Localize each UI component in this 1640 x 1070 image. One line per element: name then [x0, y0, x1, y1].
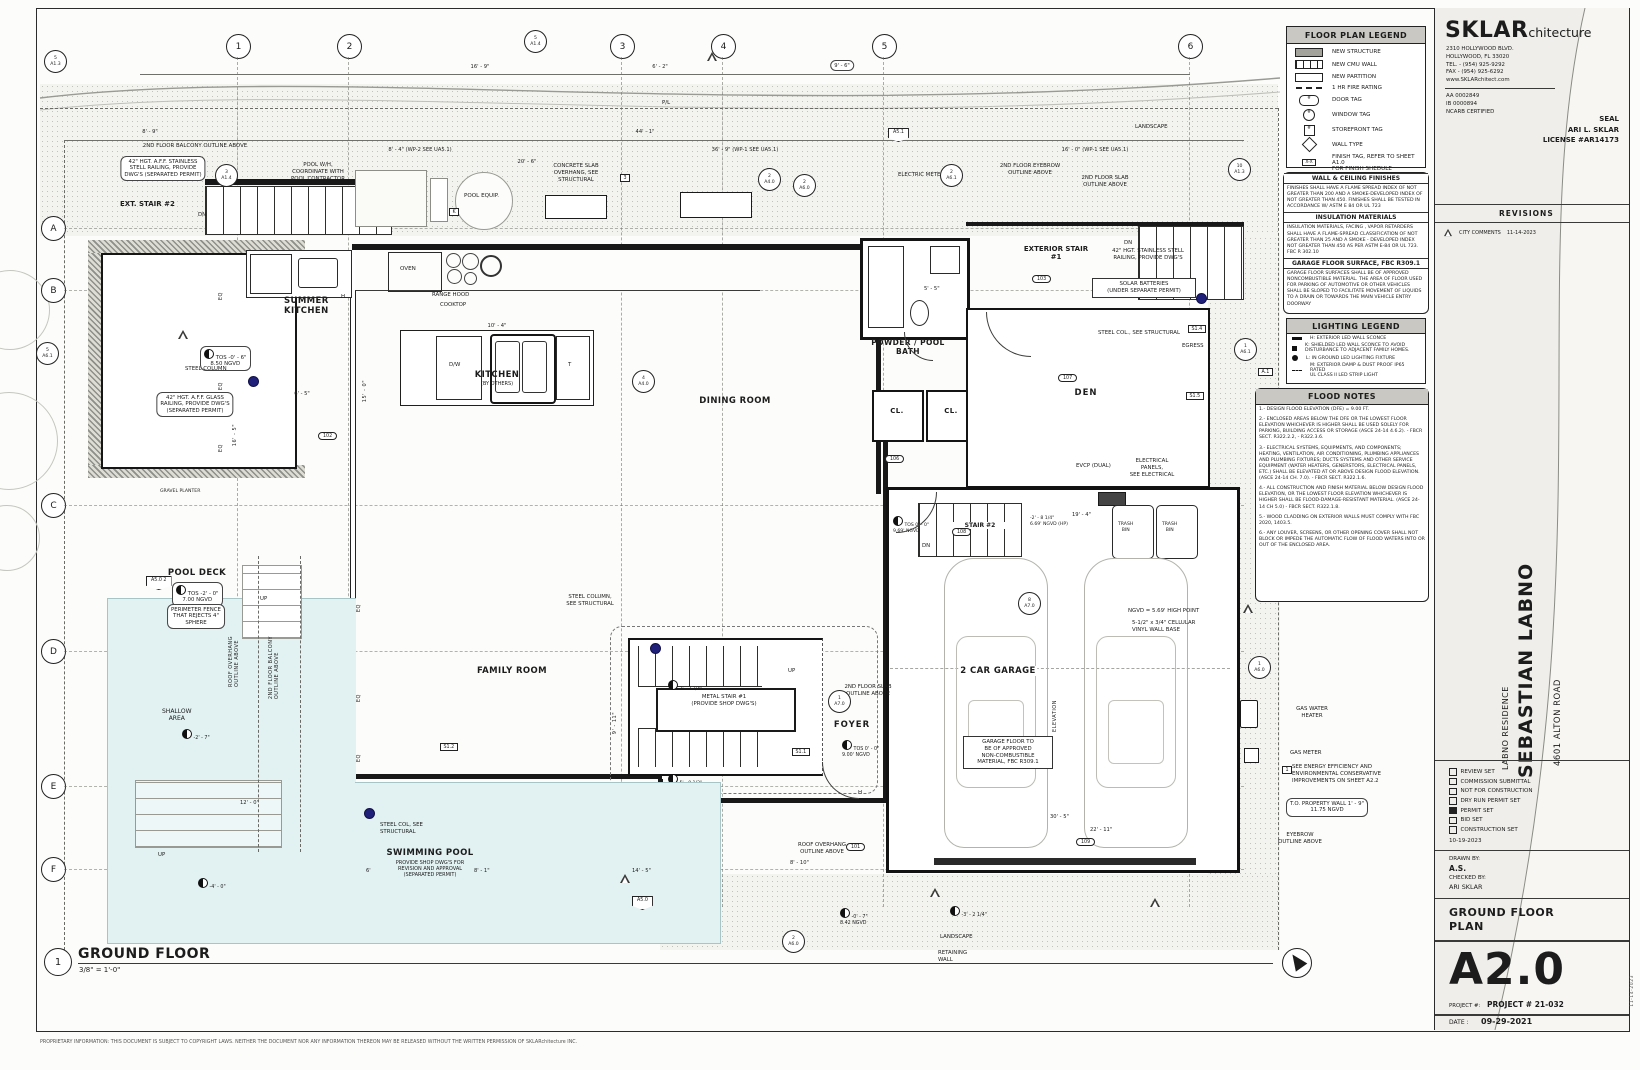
elevation-flag-icon	[842, 740, 852, 750]
dim: 8' - 4" (WP-2 SEE UA5.1)	[388, 147, 451, 153]
steel-column-icon	[650, 643, 661, 654]
dim: 44' - 1"	[636, 129, 655, 135]
view-scale: 3/8" = 1'-0"	[79, 966, 120, 974]
room-label-cl: CL.	[944, 407, 957, 415]
annotation: NGVD = 5.69' HIGH POINT	[1128, 608, 1199, 615]
dim: 15' - 0"	[362, 380, 368, 402]
trash-pullout	[556, 336, 590, 400]
annotation: STEEL COLUMN	[185, 366, 227, 373]
elevation-note: TOS -2' - 0" 7.00 NGVD	[172, 582, 223, 607]
property-line-top	[40, 108, 1278, 109]
annotation-vertical: ROOF OVERHANG OUTLINE ABOVE	[228, 636, 240, 687]
elevation-note: -3' - 2 1/4"	[950, 906, 987, 919]
insulation-body: INSULATION MATERIALS, FACING , VAPOR RET…	[1284, 223, 1428, 258]
room-label-den: DEN	[1075, 388, 1098, 398]
planter-band	[88, 253, 101, 465]
checkbox-icon	[1449, 817, 1457, 825]
steel-column-icon	[248, 376, 259, 387]
sink-icon	[298, 258, 338, 288]
door-tag-symbol: #	[1294, 95, 1324, 106]
sconce-tag: H	[858, 790, 862, 797]
checkbox-icon	[1449, 788, 1457, 796]
gas-water-heater-icon	[1240, 700, 1258, 728]
annotation: COOKTOP	[440, 302, 466, 309]
room-label-garage: 2 CAR GARAGE	[958, 666, 1037, 676]
cmu-wall-symbol	[1294, 60, 1324, 69]
dim: 30' - 5"	[1050, 814, 1069, 820]
roof-overhang-dashed	[258, 556, 259, 852]
trash-bin-label: TRASH BIN	[1162, 522, 1177, 533]
residence-label: LABNO RESIDENCE	[1501, 600, 1510, 770]
elevation-note: -4' - 0"	[198, 878, 226, 891]
annotation: T.O. PROPERTY WALL 1' - 9" 11.75 NGVD	[1286, 798, 1368, 817]
burner-icon	[447, 269, 462, 284]
drawing-sheet: P/L 1 2 3 4 5 6 A B C D E F 16' - 9" 6' …	[0, 0, 1640, 1070]
strip-light-symbol	[1292, 370, 1302, 371]
elevation-note: -0' - 7" 8.42 NGVD	[840, 908, 868, 927]
revision-delta-icon	[1444, 229, 1452, 236]
eq-label: EQ	[356, 604, 362, 612]
room-sublabel-pool: PROVIDE SHOP DWG'S FOR REVISION AND APPR…	[396, 860, 464, 878]
dim: 12' - 0"	[240, 800, 259, 806]
tb-divider	[1435, 222, 1629, 223]
annotation: PERIMETER FENCE THAT REJECTS 4" SPHERE	[167, 604, 225, 629]
oven-label: OVEN	[400, 266, 416, 273]
pool-equipment	[430, 178, 448, 222]
title-block: SKLARchitecture 2310 HOLLYWOOD BLVD. HOL…	[1434, 8, 1629, 1030]
tb-divider	[1435, 1014, 1629, 1016]
detail-tag: 8 A7.0	[1018, 592, 1041, 615]
dim: 22' - 11"	[1090, 827, 1112, 833]
checked-by-label: CHECKED BY:	[1449, 875, 1486, 881]
garage-floor-body: GARAGE FLOOR SURFACES SHALL BE OF APPROV…	[1284, 269, 1428, 310]
road-curve	[36, 8, 1286, 118]
annotation: 5-1/2" x 3/4" CELLULAR VINYL WALL BASE	[1132, 620, 1195, 634]
annotation: ELECTRICAL PANELS, SEE ELECTRICAL	[1130, 458, 1175, 478]
tb-divider	[1435, 760, 1629, 761]
storefront-tag-symbol: #	[1294, 125, 1324, 136]
detail-tag: 1 A6.0	[1248, 656, 1271, 679]
deck-steps	[242, 565, 302, 639]
room-label-cl: CL.	[890, 407, 903, 415]
grid-row-f: F	[41, 857, 66, 882]
revision-triangle-icon	[178, 330, 188, 339]
checkbox-icon	[1449, 778, 1457, 786]
detail-tag: 2 A6.0	[793, 174, 816, 197]
garage-floor-header: GARAGE FLOOR SURFACE, FBC R309.1	[1284, 258, 1428, 269]
annotation: 2ND FLOOR EYEBROW OUTLINE ABOVE	[1000, 163, 1060, 177]
lighting-legend: LIGHTING LEGEND H: EXTERIOR LED WALL SCO…	[1286, 318, 1426, 384]
tag: A.1	[1258, 368, 1273, 376]
flood-notes-title: FLOOD NOTES	[1256, 389, 1428, 405]
grid-row-b: B	[41, 278, 66, 303]
detail-tag: 1 A6.1	[1234, 338, 1257, 361]
room-label-summer-kitchen: SUMMER KITCHEN	[284, 296, 329, 316]
annotation: POOL W/H, COORDINATE WITH POOL CONTRACTO…	[291, 162, 345, 182]
room-label-dining: DINING ROOM	[699, 396, 770, 406]
sheet-title: GROUND FLOOR PLAN	[1449, 906, 1554, 935]
firm-registrations: AA 0002849 IB 0000894 NCARB CERTIFIED	[1446, 92, 1494, 116]
annotation: LANDSCAPE	[1135, 124, 1168, 131]
keynote-tag: 1	[1282, 766, 1292, 774]
trash-bin-label: TRASH BIN	[1118, 522, 1133, 533]
fire-rating-symbol	[1294, 87, 1324, 89]
eq-label: EQ	[356, 694, 362, 702]
view-title: GROUND FLOOR	[78, 946, 210, 962]
dim: 5' - 5"	[924, 286, 940, 292]
property-line-left	[64, 140, 65, 950]
equipment-box	[545, 195, 607, 219]
flood-notes: FLOOD NOTES 1.- DESIGN FLOOD ELEVATION (…	[1255, 388, 1429, 602]
checked-by: ARI SKLAR	[1449, 883, 1483, 891]
elevation-flag-icon	[204, 349, 214, 359]
pool-equip-label: POOL EQUIP.	[464, 193, 499, 200]
dn-label: DN	[198, 212, 206, 219]
room-tag: 102	[318, 432, 337, 440]
up-label: UP	[158, 852, 165, 859]
grid-col-2: 2	[337, 34, 362, 59]
seal-block: SEAL ARI L. SKLAR LICENSE #AR14173	[1495, 114, 1619, 146]
dn-label: DN	[1124, 240, 1132, 247]
property-line-label: P/L	[662, 100, 670, 107]
annotation: STEEL COL, SEE STRUCTURAL	[380, 822, 423, 836]
eq-label: EQ	[218, 444, 224, 452]
burner-icon	[446, 253, 461, 268]
dim: 16' - 9"	[471, 64, 490, 70]
annotation: LANDSCAPE	[940, 934, 973, 941]
detail-tag: 10 A1.3	[1228, 158, 1251, 181]
footer-note: PROPRIETARY INFORMATION: THIS DOCUMENT I…	[40, 1040, 577, 1045]
sheet-date: 09-29-2021	[1481, 1017, 1532, 1026]
annotation: EYEBROW OUTLINE ABOVE	[1278, 832, 1322, 846]
toilet-icon	[910, 300, 929, 326]
date-label: DATE :	[1449, 1019, 1469, 1026]
detail-tag: 5 A1.3	[44, 50, 67, 73]
eq-label: EQ	[356, 754, 362, 762]
steel-column-icon	[364, 808, 375, 819]
sink-basin	[522, 341, 547, 393]
dim: 8' - 9"	[142, 129, 158, 135]
dim: 14' - 5"	[632, 868, 651, 874]
dw-label: D/W	[449, 362, 460, 369]
detail-tag: 4 A4.0	[632, 370, 655, 393]
north-arrow-icon	[1282, 948, 1312, 978]
lighting-title: LIGHTING LEGEND	[1287, 319, 1425, 334]
project-no: PROJECT # 21-032	[1487, 1000, 1564, 1009]
dim: 8' - 10"	[790, 860, 809, 866]
checkbox-icon	[1449, 826, 1457, 834]
annotation: SEE ENERGY EFFICIENCY AND ENVIRONMENTAL …	[1292, 764, 1381, 784]
annotation: 2ND FLOOR SLAB OUTLINE ABOVE	[844, 684, 891, 698]
grid-col-1: 1	[226, 34, 251, 59]
room-tag: 106	[885, 455, 904, 463]
revisions-label: REVISIONS	[1499, 209, 1554, 218]
annotation: GAS METER	[1290, 750, 1322, 757]
elevation-note: -2' - 7"	[182, 729, 210, 742]
annotation: STEEL COL., SEE STRUCTURAL	[1098, 330, 1180, 337]
evcp-box	[1098, 492, 1126, 506]
insulation-header: INSULATION MATERIALS	[1284, 212, 1428, 223]
eq-label: EQ	[218, 292, 224, 300]
burner-icon	[464, 272, 477, 285]
annotation: RETAINING WALL	[938, 950, 967, 964]
annotation: EGRESS	[1182, 343, 1204, 350]
annotation: 2ND FLOOR BALCONY OUTLINE ABOVE	[120, 143, 270, 150]
tag: 3	[620, 174, 630, 182]
burner-icon	[462, 253, 479, 270]
annotation: 2ND FLOOR SLAB OUTLINE ABOVE	[1081, 175, 1128, 189]
elevation-flag-icon	[840, 908, 850, 918]
gas-meter-icon	[1244, 748, 1259, 763]
room-label-kitchen: KITCHEN	[475, 370, 520, 380]
room-label-ext-stair2: EXT. STAIR #2	[120, 200, 198, 208]
shallow-area-label: SHALLOW AREA	[162, 708, 192, 722]
wall-type-symbol	[1294, 139, 1324, 150]
garage-floor-note: GARAGE FLOOR TO BE OF APPROVED NON-COMBU…	[963, 736, 1053, 769]
tb-divider	[1435, 850, 1629, 851]
revision-triangle-icon	[930, 888, 940, 897]
shielded-sconce-symbol	[1292, 346, 1297, 351]
eq-label: EQ	[218, 382, 224, 390]
annotation: 42" HGT. A.F.F. GLASS RAILING, PROVIDE D…	[156, 392, 233, 417]
new-structure-symbol	[1294, 48, 1324, 57]
up-label: UP	[260, 596, 267, 603]
finishes-notes: WALL & CEILING FINISHES FINISHES SHALL H…	[1283, 172, 1429, 314]
grid-row-a: A	[41, 216, 66, 241]
finishes-header: WALL & CEILING FINISHES	[1284, 173, 1428, 184]
t-label: T	[568, 362, 571, 369]
dim: 16' - 5"	[232, 424, 238, 446]
dim-line	[64, 140, 1244, 141]
dn-label: DN	[922, 543, 930, 550]
tag: K	[449, 208, 459, 216]
firm-logo: SKLARchitecture	[1445, 18, 1592, 43]
vanity	[930, 246, 960, 274]
elevation-note: -2' - 8 1/4" 6.69' NGVD (HP)	[1030, 516, 1068, 527]
tb-divider	[1435, 898, 1629, 899]
checkbox-icon	[1449, 768, 1457, 776]
car-roof	[1108, 700, 1164, 764]
window-tag-symbol: #	[1294, 109, 1324, 121]
detail-tag: 2 A6.1	[940, 164, 963, 187]
finishes-body: FINISHES SHALL HAVE A FLAME SPREAD INDEX…	[1284, 184, 1428, 212]
room-label-pool: SWIMMING POOL	[386, 848, 473, 858]
dim: 8' - 1"	[474, 868, 490, 874]
floor-plan-legend: FLOOR PLAN LEGEND NEW STRUCTURE NEW CMU …	[1286, 26, 1426, 168]
elevation-flag-icon	[182, 729, 192, 739]
sconce-symbol	[1292, 337, 1302, 340]
project-name: SEBASTIAN LABNO	[1515, 593, 1537, 778]
revision-triangle-icon	[1150, 898, 1160, 907]
annotation: STEEL COLUMN, SEE STRUCTURAL	[566, 594, 614, 608]
revision-triangle-icon	[707, 52, 717, 61]
pool-equipment	[355, 170, 427, 227]
room-tag: 107	[1058, 374, 1077, 382]
room-label-pool-deck: POOL DECK	[168, 568, 226, 578]
revision-row: CITY COMMENTS 11-14-2023	[1443, 228, 1536, 237]
dim: 36' - 9" (WP-1 SEE UA5.1)	[712, 147, 779, 153]
elevation-note: TOS 0' - 0" 9.00' NGVD	[842, 740, 879, 759]
detail-tag: 2 A6.0	[782, 930, 805, 953]
dim: 6' - 2"	[652, 64, 668, 70]
project-no-label: PROJECT #:	[1449, 1003, 1480, 1009]
tag: S1.2	[440, 743, 458, 751]
tree-icon	[0, 505, 40, 571]
pool-equipment-fan	[455, 172, 513, 230]
detail-tag: 1 A7.0	[828, 690, 851, 713]
inground-light-symbol	[1292, 355, 1298, 361]
project-address: 4601 ALTON ROAD	[1553, 606, 1563, 766]
dim: 16' - 0" (WP-1 SEE UA5.1)	[1062, 147, 1129, 153]
tb-divider	[1435, 204, 1629, 205]
detail-tag: 3 A1.4	[215, 164, 238, 187]
annotation: ROOF OVERHANG OUTLINE ABOVE	[798, 842, 846, 856]
annotation: CONCRETE SLAB OVERHANG, SEE STRUCTURAL	[553, 163, 598, 183]
grid-row-e: E	[41, 774, 66, 799]
gravel-planter-label: GRAVEL PLANTER	[160, 489, 200, 495]
equipment-box	[680, 192, 752, 218]
room-sublabel-kitchen: (BY OTHERS)	[481, 381, 513, 387]
tb-divider	[1445, 88, 1555, 89]
annotation: GAS WATER HEATER	[1296, 706, 1328, 720]
view-title-rule	[78, 963, 1273, 964]
closet	[872, 390, 924, 442]
annotation: RANGE HOOD	[432, 292, 469, 299]
set-date: 10-19-2023	[1449, 838, 1482, 844]
dim-line	[140, 74, 1190, 75]
room-label-foyer: FOYER	[834, 720, 870, 730]
room-label-ext-stair1: EXTERIOR STAIR #1	[1012, 245, 1100, 261]
dim: 6'	[366, 868, 371, 874]
detail-tag: 5 A1.4	[524, 30, 547, 53]
detail-tag: 2 A4.0	[758, 168, 781, 191]
grid-row-c: C	[41, 493, 66, 518]
annotation: 42" HGT. A.F.F. STAINLESS STELL RAILING,…	[120, 156, 205, 181]
side-date: 11-14-2023	[1630, 975, 1635, 1007]
sheet-number: A2.0	[1449, 944, 1565, 995]
garage-door	[934, 858, 1196, 865]
shower	[868, 246, 904, 328]
checkbox-icon	[1449, 797, 1457, 805]
summer-kitchen-appliance	[250, 254, 292, 294]
balcony-dashed	[300, 556, 301, 852]
elevation-v-label: ELEVATION	[1052, 700, 1058, 732]
drawn-by: A.S.	[1449, 864, 1466, 873]
partition-symbol	[1294, 73, 1324, 82]
elevation-flag-icon	[198, 878, 208, 888]
revision-triangle-icon	[620, 874, 630, 883]
pool-steps	[135, 780, 282, 848]
dim: 6' - 5"	[294, 391, 310, 397]
grid-col-5: 5	[872, 34, 897, 59]
tag: S1.5	[1186, 392, 1204, 400]
room-tag: 101	[846, 843, 865, 851]
room-label-family: FAMILY ROOM	[477, 666, 547, 676]
finish-tag-symbol: X-X	[1294, 159, 1324, 166]
steel-column-icon	[1196, 293, 1207, 304]
annotation-vertical: 2ND FLOOR BALCONY OUTLINE ABOVE	[268, 636, 280, 699]
elevation-flag-icon	[950, 906, 960, 916]
annotation: EVCP (DUAL)	[1076, 463, 1111, 470]
view-number-bubble: 1	[44, 948, 72, 976]
tag: S1.4	[1188, 325, 1206, 333]
revision-triangle-icon	[1243, 604, 1253, 613]
dim: 20' - 6"	[518, 159, 537, 165]
annotation: 42" HGT. STAINLESS STELL RAILING, PROVID…	[1112, 248, 1184, 262]
grid-row-d: D	[41, 639, 66, 664]
tb-divider	[1435, 940, 1629, 942]
elevation-flag-icon	[176, 585, 186, 595]
annotation: ELECTRIC METER	[898, 172, 944, 179]
tag: S1.1	[792, 748, 810, 756]
checkbox-checked-icon	[1449, 807, 1457, 815]
room-tag: 109	[1076, 838, 1095, 846]
issue-sets: REVIEW SET COMMISSION SUBMITTAL NOT FOR …	[1449, 766, 1533, 836]
firm-address: 2310 HOLLYWOOD BLVD. HOLLYWOOD, FL 33020…	[1446, 46, 1514, 85]
legend-title: FLOOR PLAN LEGEND	[1287, 27, 1425, 44]
room-tag: 103	[1032, 275, 1051, 283]
dim: 19' - 4"	[1072, 512, 1091, 518]
grid-col-6: 6	[1178, 34, 1203, 59]
burner-icon	[480, 255, 502, 277]
room-tag: 108	[952, 528, 971, 536]
dim: 9' - 6"	[830, 60, 854, 71]
detail-tag: 5 A6.1	[36, 342, 59, 365]
sconce-tag: H	[341, 294, 345, 301]
solar-batteries-note: SOLAR BATTERIES (UNDER SEPARATE PERMIT)	[1092, 278, 1196, 298]
dim: 10' - 4"	[488, 323, 507, 329]
drawn-by-label: DRAWN BY:	[1449, 856, 1480, 862]
grid-col-3: 3	[610, 34, 635, 59]
